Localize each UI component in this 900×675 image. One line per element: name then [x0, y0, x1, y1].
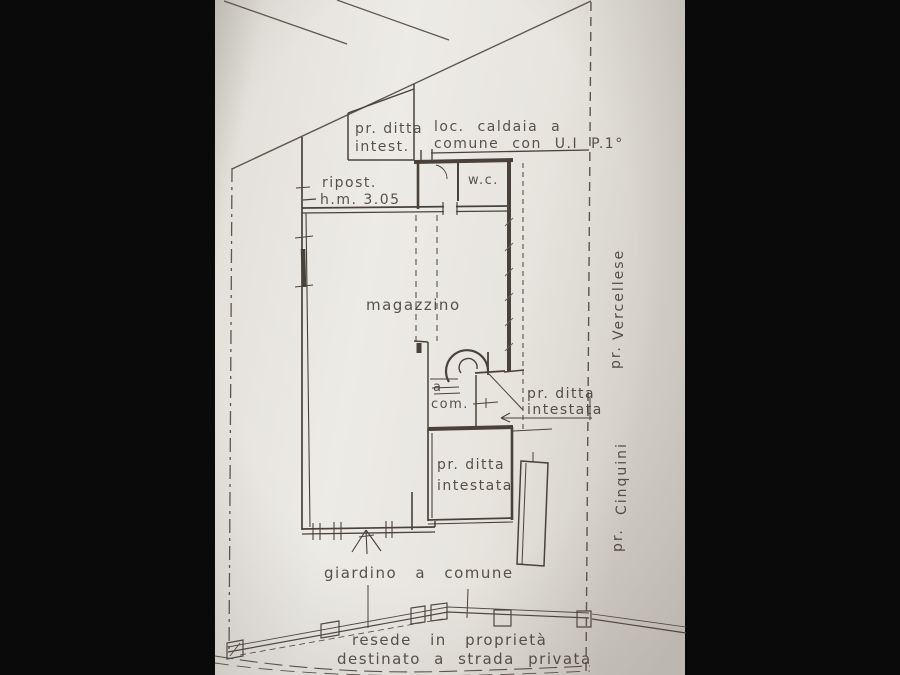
label-cinquini-name: Cinquini	[614, 442, 630, 515]
label-boiler-line2: comune con U.I P.1°	[434, 136, 624, 152]
label-stair-common-line1: a	[433, 380, 442, 395]
wc-top-wall	[414, 160, 513, 162]
label-boiler-line1: loc. caldaia a	[434, 119, 561, 135]
floor-plan-svg: pr. ditta intest. loc. caldaia a comune …	[0, 0, 900, 675]
label-owner-box-line1: pr. ditta	[355, 121, 423, 137]
label-stair-owner-line2: intestata	[527, 402, 603, 418]
label-storage-line1: ripost.	[322, 175, 377, 191]
label-stair-owner-line1: pr. ditta	[527, 386, 595, 402]
label-road-note-line2: destinato a strada privata	[337, 650, 592, 668]
label-room-owner-line2: intestata	[437, 478, 513, 494]
label-road-note-line1: resede in proprietà	[352, 631, 547, 649]
scanned-floor-plan: pr. ditta intest. loc. caldaia a comune …	[0, 0, 900, 675]
label-storage-line2: h.m. 3.05	[320, 192, 401, 208]
label-room-owner-line1: pr. ditta	[437, 457, 505, 473]
label-vercellese-name: Vercellese	[611, 249, 627, 340]
label-cinquini-prefix: pr.	[610, 528, 626, 552]
label-garden: giardino a comune	[324, 564, 514, 582]
label-vercellese-prefix: pr.	[608, 345, 624, 369]
label-warehouse: magazzino	[366, 296, 461, 314]
label-owner-box-line2: intest.	[355, 139, 410, 155]
label-wc: w.c.	[468, 173, 499, 188]
label-stair-common-line2: com.	[431, 397, 469, 412]
